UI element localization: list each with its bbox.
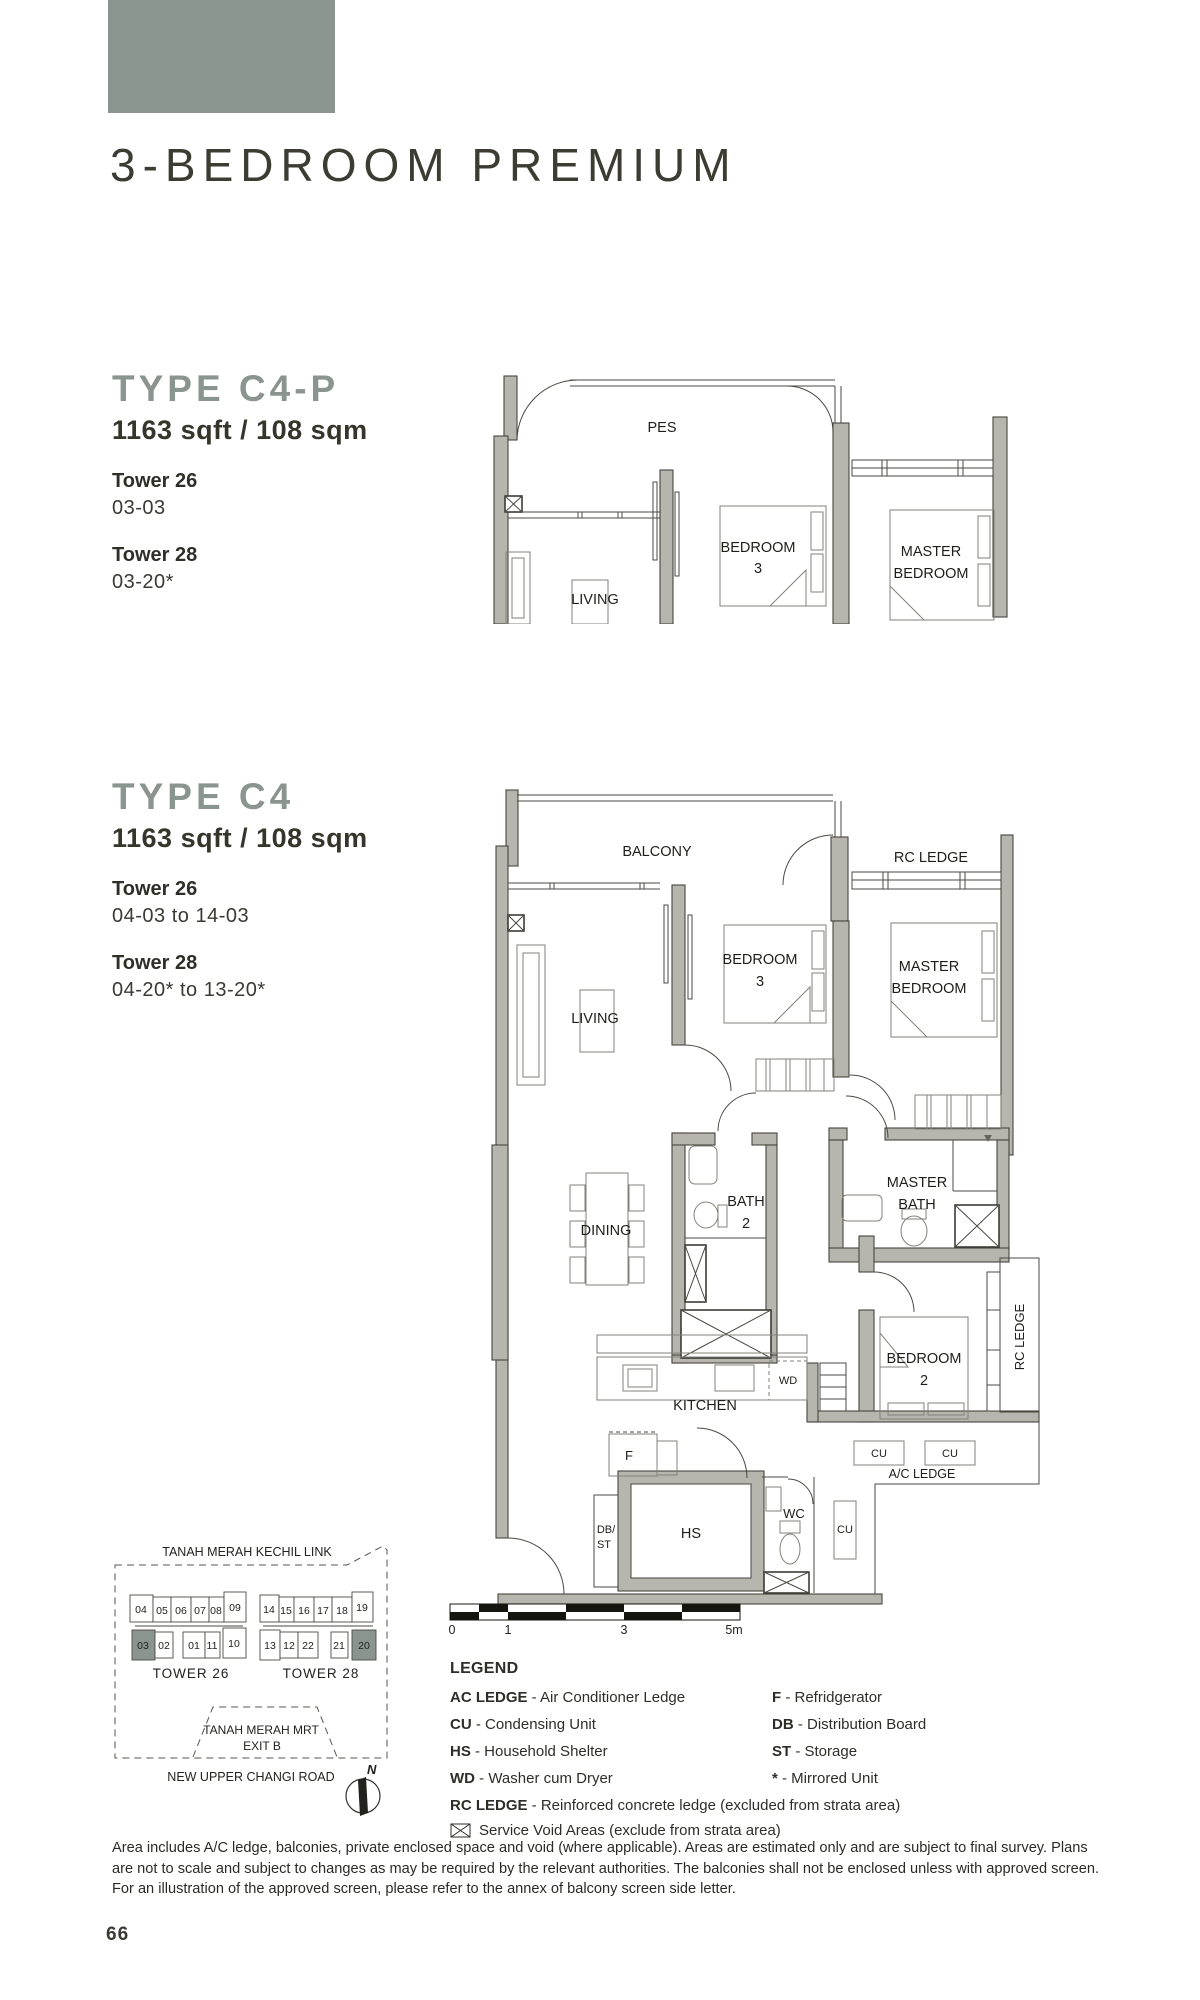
room-label-rc-ledge-top: RC LEDGE [894,850,968,866]
legend-item: HS - Household Shelter [450,1743,772,1760]
bed-bedroom2 [880,1317,968,1419]
tower-group: Tower 28 03-20* [112,544,452,594]
svg-text:11: 11 [207,1640,218,1652]
scale-bar: 0 1 3 5m [448,1592,748,1638]
tower-units: 03-20* [112,571,452,594]
legend-item: F - Refridgerator [772,1689,1112,1706]
svg-text:19: 19 [356,1602,368,1614]
room-label-rc-ledge-right: RC LEDGE [1012,1303,1027,1370]
legend-grid: AC LEDGE - Air Conditioner Ledge F - Ref… [450,1689,1130,1787]
legend-item: DB - Distribution Board [772,1716,1112,1733]
label-cu3: CU [837,1524,853,1536]
legend-title: LEGEND [450,1660,1130,1678]
tower26-block: 04 05 06 07 08 09 03 02 01 11 10 TOWER 2… [130,1592,246,1681]
unit-area: 1163 sqft / 108 sqm [112,823,452,854]
svg-text:05: 05 [156,1605,168,1617]
svg-text:07: 07 [194,1605,206,1617]
room-label-ac-ledge: A/C LEDGE [889,1467,956,1481]
svg-text:BEDROOM: BEDROOM [892,981,967,997]
room-label-kitchen: KITCHEN [673,1398,737,1414]
svg-text:BEDROOM: BEDROOM [894,566,969,582]
room-label-bath2: BATH [727,1194,765,1210]
sofa [506,552,530,624]
tower26-label: TOWER 26 [153,1666,230,1681]
floor-plan-type-c4p: PES LIVING BEDROOM 3 MASTER BEDROOM [490,352,1040,624]
svg-text:2: 2 [742,1216,750,1232]
svg-text:21: 21 [333,1640,345,1652]
room-label-wc: WC [783,1506,805,1521]
room-label-bedroom3: BEDROOM [721,540,796,556]
road-label-bottom: NEW UPPER CHANGI ROAD [167,1770,334,1784]
scale-tick-1: 1 [505,1623,512,1637]
compass-n-label: N [367,1762,377,1777]
room-label-pes: PES [647,420,676,436]
scale-tick-3: 3 [621,1623,628,1637]
label-cu1: CU [871,1448,887,1460]
svg-text:01: 01 [188,1640,200,1652]
cooktop [715,1365,754,1391]
tower-name: Tower 28 [112,544,452,567]
page-number: 66 [106,1924,129,1946]
legend-item-service-void: Service Void Areas (exclude from strata … [450,1822,1130,1839]
plan-a-room-labels: PES LIVING BEDROOM 3 MASTER BEDROOM [571,420,968,608]
svg-text:22: 22 [302,1640,314,1652]
label-st: ST [597,1539,611,1551]
room-label-living: LIVING [571,1011,619,1027]
legend-item: AC LEDGE - Air Conditioner Ledge [450,1689,772,1706]
service-void-marker [505,496,522,512]
legend-item: WD - Washer cum Dryer [450,1770,772,1787]
svg-text:2: 2 [920,1373,928,1389]
site-map: TANAH MERAH KECHIL LINK 04 05 06 07 08 0… [95,1518,425,1818]
service-void-master-bath [955,1205,999,1247]
bed-master [890,510,994,620]
unit-type-name: TYPE C4 [112,778,452,817]
tower28-block: 14 15 16 17 18 19 13 12 22 21 20 TOWER 2… [260,1592,376,1681]
svg-text:18: 18 [336,1605,348,1617]
page-title: 3-BEDROOM PREMIUM [110,138,738,192]
tower-units: 03-03 [112,497,452,520]
room-label-living: LIVING [571,592,619,608]
unit-type-name: TYPE C4-P [112,370,452,409]
room-label-master-bath: MASTER [887,1175,947,1191]
sofa [517,945,545,1085]
room-label-hs: HS [681,1526,701,1542]
plan-b-room-labels: BALCONY RC LEDGE LIVING BEDROOM 3 MASTER… [571,844,1027,1551]
wardrobe-bedroom3 [756,1059,834,1091]
service-void-wc [764,1572,809,1593]
svg-text:3: 3 [754,561,762,577]
compass-icon: N [346,1762,380,1816]
road-label-top: TANAH MERAH KECHIL LINK [162,1545,332,1559]
legend-item: ST - Storage [772,1743,1112,1760]
tower-group: Tower 26 03-03 [112,470,452,520]
svg-text:12: 12 [283,1640,295,1652]
floor-plan-type-c4: BALCONY RC LEDGE LIVING BEDROOM 3 MASTER… [490,765,1050,1610]
scale-tick-0: 0 [449,1623,456,1637]
svg-text:04: 04 [135,1604,147,1616]
unit-area: 1163 sqft / 108 sqm [112,415,452,446]
scale-tick-5m: 5m [725,1623,742,1637]
plan-a-walls [494,376,1007,624]
room-label-balcony: BALCONY [622,844,692,860]
svg-text:06: 06 [175,1605,187,1617]
legend-item: * - Mirrored Unit [772,1770,1112,1787]
bath2-fixtures [689,1146,727,1228]
svg-text:02: 02 [158,1640,170,1652]
tower-name: Tower 26 [112,878,452,901]
room-label-master-bedroom: MASTER [899,959,959,975]
brand-color-block [108,0,335,113]
service-void-main [681,1310,771,1358]
brochure-page: 3-BEDROOM PREMIUM TYPE C4-P 1163 sqft / … [0,0,1200,2000]
svg-text:BATH: BATH [898,1197,936,1213]
svg-text:09: 09 [229,1602,241,1614]
mrt-label: TANAH MERAH MRT [203,1723,319,1737]
label-cu2: CU [942,1448,958,1460]
svg-text:16: 16 [298,1605,310,1617]
fridge [609,1434,677,1476]
room-label-bedroom2: BEDROOM [887,1351,962,1367]
svg-text:08: 08 [210,1605,222,1617]
tower28-label: TOWER 28 [283,1666,360,1681]
label-wd: WD [779,1375,797,1387]
svg-text:13: 13 [264,1640,276,1652]
unit-info-type-c4: TYPE C4 1163 sqft / 108 sqm Tower 26 04-… [112,778,452,1002]
tower-group: Tower 26 04-03 to 14-03 [112,878,452,928]
legend-item: CU - Condensing Unit [450,1716,772,1733]
bed-master [891,923,997,1037]
wc-fixtures [766,1487,800,1564]
label-fridge: F [625,1448,633,1463]
tower-name: Tower 28 [112,952,452,975]
legend: LEGEND AC LEDGE - Air Conditioner Ledge … [450,1660,1130,1839]
room-label-bedroom3: BEDROOM [723,952,798,968]
bed-bedroom3 [720,506,826,606]
svg-text:20: 20 [358,1640,370,1652]
tower-group: Tower 28 04-20* to 13-20* [112,952,452,1002]
bed-bedroom3 [724,925,826,1023]
room-label-master-bedroom: MASTER [901,544,961,560]
plan-b-walls [492,790,1039,1604]
service-void-marker [508,915,524,931]
wardrobe-master [915,1095,1001,1129]
tower-name: Tower 26 [112,470,452,493]
svg-text:17: 17 [317,1605,329,1617]
unit-info-type-c4p: TYPE C4-P 1163 sqft / 108 sqm Tower 26 0… [112,370,452,594]
svg-text:EXIT B: EXIT B [243,1739,281,1753]
legend-item-rc-ledge: RC LEDGE - Reinforced concrete ledge (ex… [450,1797,1130,1814]
service-void-icon [450,1823,471,1838]
svg-text:03: 03 [137,1640,149,1652]
tower-units: 04-20* to 13-20* [112,979,452,1002]
room-label-dining: DINING [581,1223,632,1239]
service-duct [685,1245,706,1302]
svg-text:14: 14 [263,1604,275,1616]
svg-text:3: 3 [756,974,764,990]
tower-units: 04-03 to 14-03 [112,905,452,928]
disclaimer-text: Area includes A/C ledge, balconies, priv… [112,1838,1100,1900]
svg-text:10: 10 [228,1638,240,1650]
svg-text:15: 15 [280,1605,292,1617]
label-db: DB/ [597,1524,616,1536]
